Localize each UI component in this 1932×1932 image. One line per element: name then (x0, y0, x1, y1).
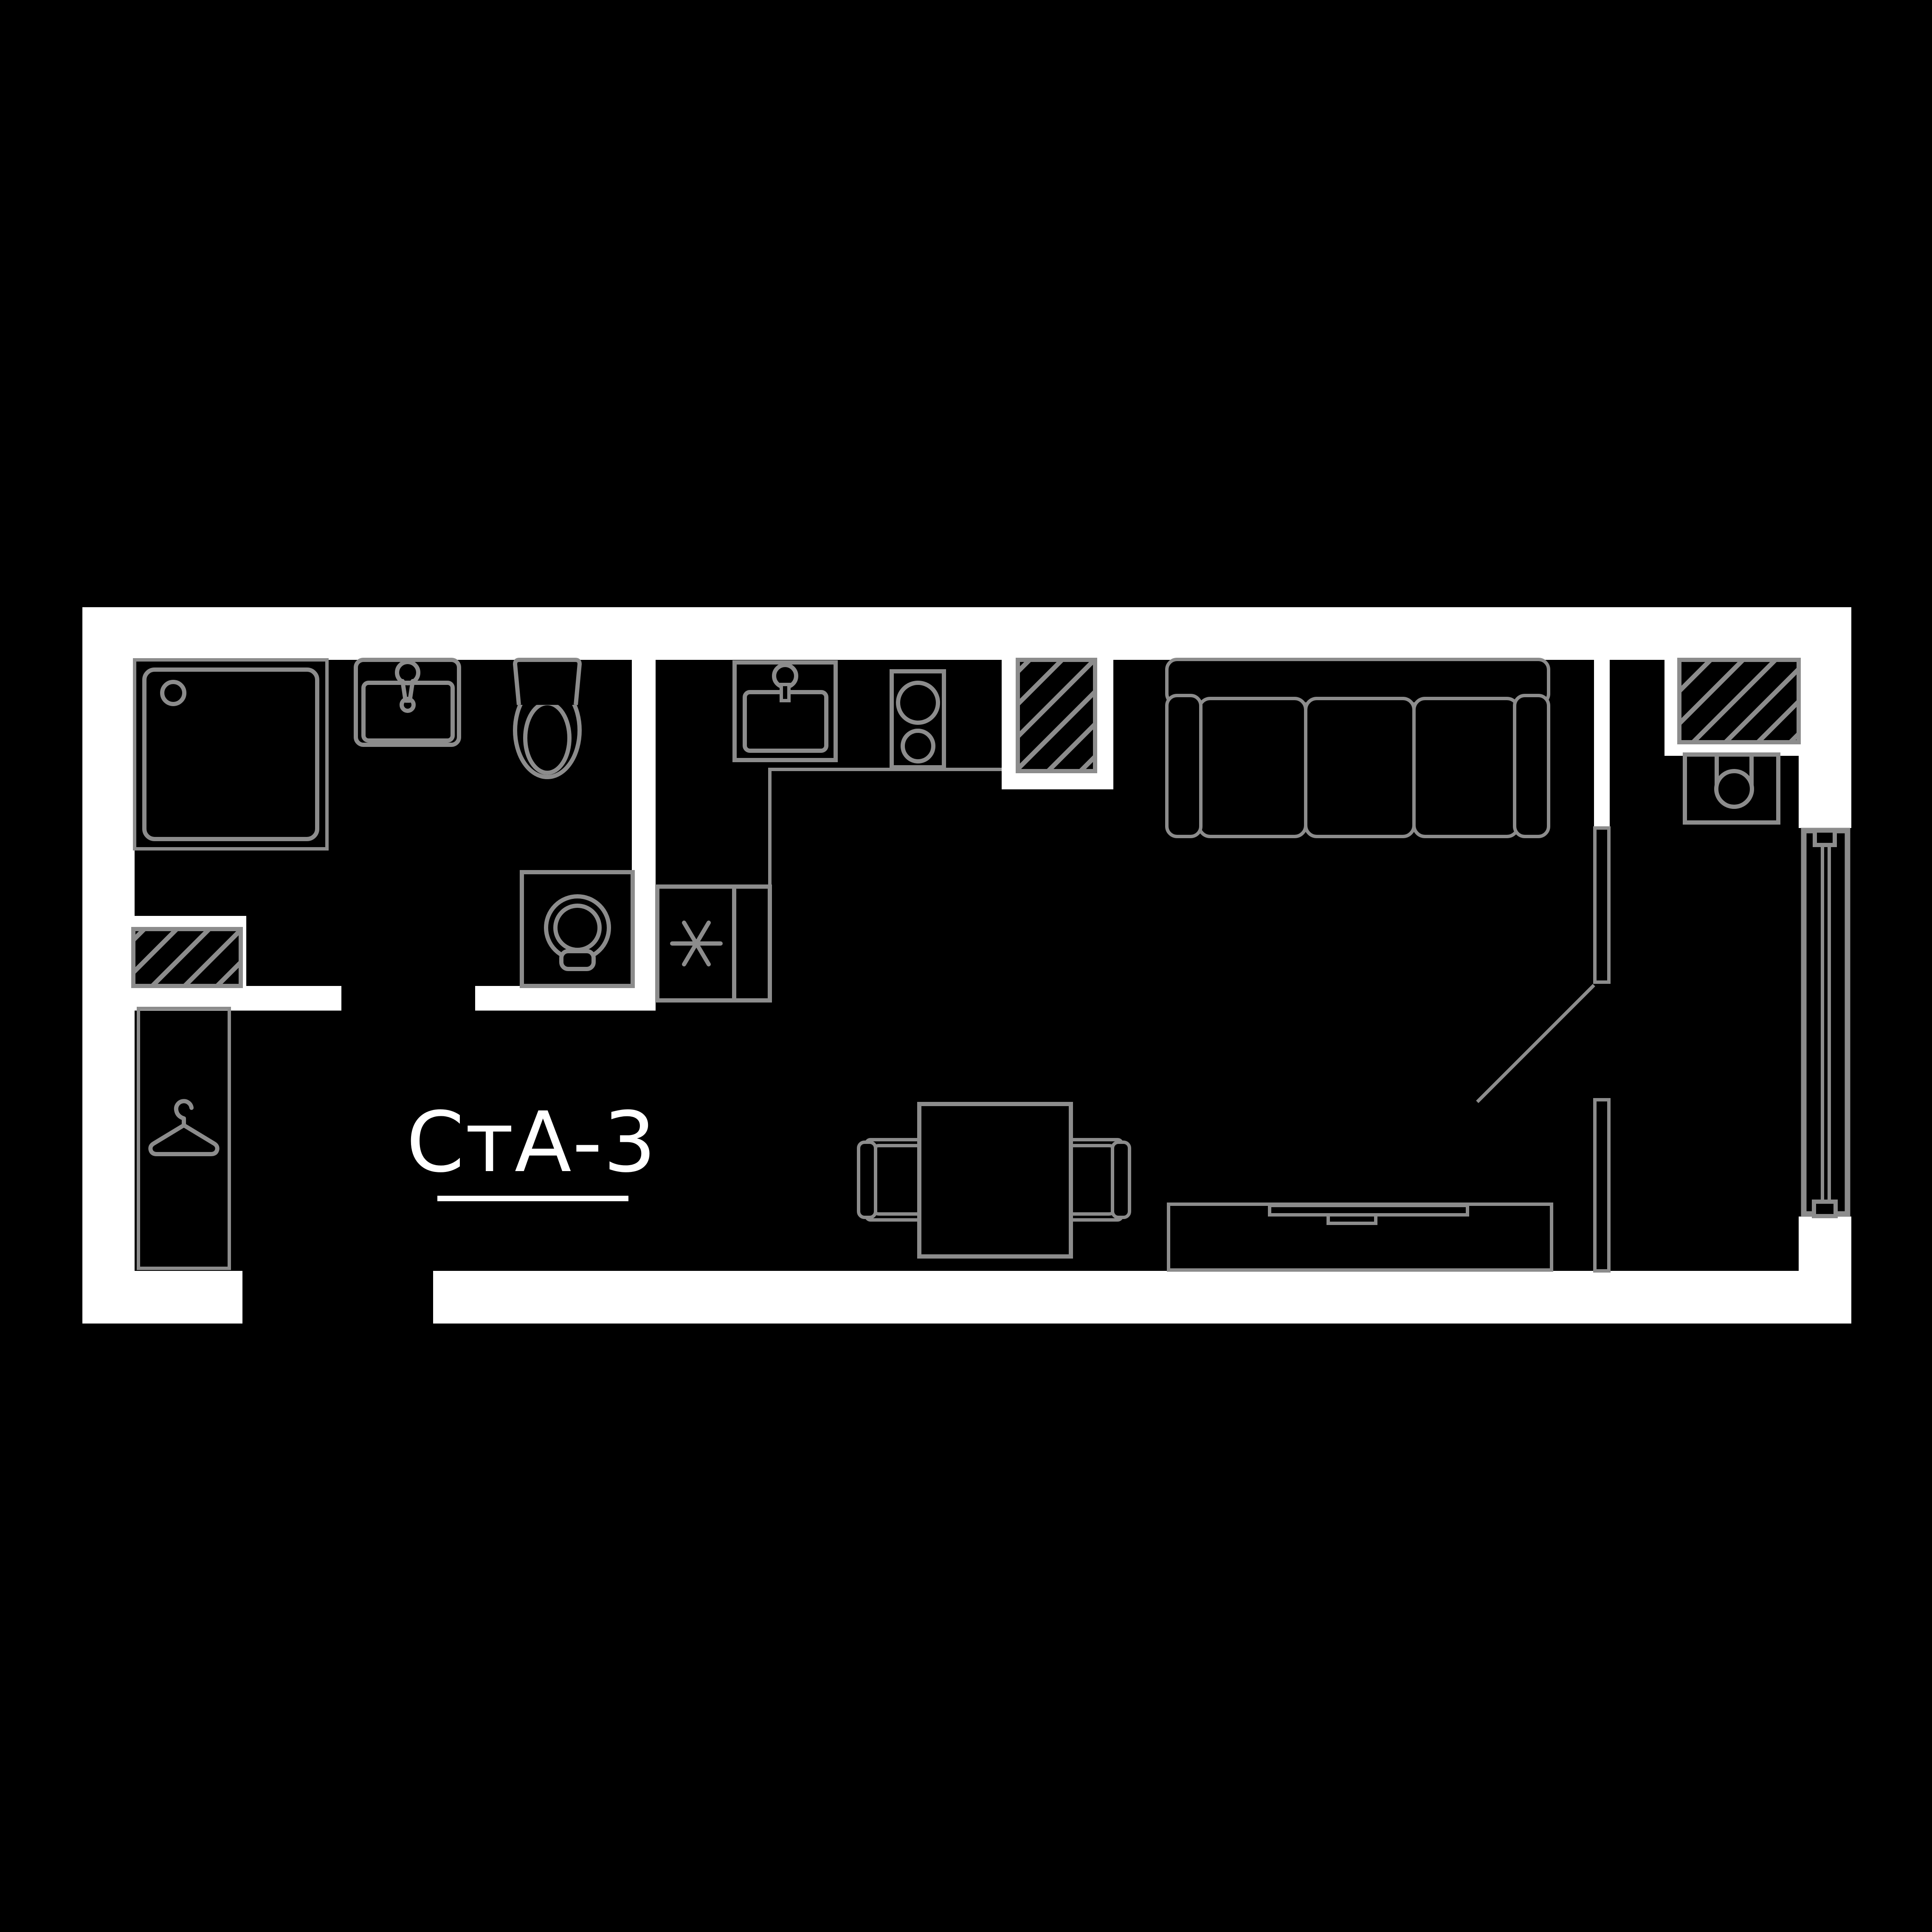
kitchen-vent-shaft-icon (1018, 660, 1095, 771)
refrigerator-icon (657, 887, 770, 1000)
balcony-vent-shaft-icon (1679, 660, 1799, 742)
wall-bottom-left (82, 1271, 242, 1324)
window-icon (1804, 831, 1848, 1216)
freezer-asterisk-icon (672, 923, 721, 964)
balcony-sink-icon (1685, 755, 1778, 822)
plan-title: СтА-3 (406, 1094, 657, 1191)
kitchen-counter (770, 769, 1002, 887)
bathroom-vent-shaft-icon (133, 929, 241, 986)
bathroom-kitchen-divider-wall (632, 660, 656, 1011)
kitchen (657, 662, 1002, 1000)
door-swing-line (1477, 985, 1594, 1102)
floor-plan: СтА-3 (0, 0, 1932, 1932)
toilet-icon (515, 660, 580, 777)
hallway (138, 1008, 229, 1268)
floor-plan-drawing: СтА-3 (0, 0, 1932, 1932)
washbasin-icon (356, 660, 459, 745)
bathroom-south-wall-right (475, 986, 656, 1011)
living-room (859, 659, 1552, 1270)
wall-right-upper (1799, 607, 1851, 828)
wardrobe (138, 1008, 229, 1268)
glazed-partition-icon (1595, 828, 1609, 1271)
balcony-partition-wall (1594, 660, 1610, 826)
cooktop-icon (892, 671, 944, 767)
plan-title-underline (437, 1196, 628, 1201)
wall-right-lower (1799, 1217, 1851, 1324)
hanger-icon (150, 1101, 217, 1154)
kitchen-sink-icon (735, 662, 836, 760)
washing-machine-icon (522, 872, 633, 986)
wall-top (82, 607, 1851, 660)
tv-icon (1270, 1205, 1467, 1223)
dining-table-icon (919, 1104, 1071, 1256)
wall-bottom (433, 1271, 1851, 1324)
sofa-icon (1167, 659, 1549, 836)
shower-icon (135, 660, 327, 849)
